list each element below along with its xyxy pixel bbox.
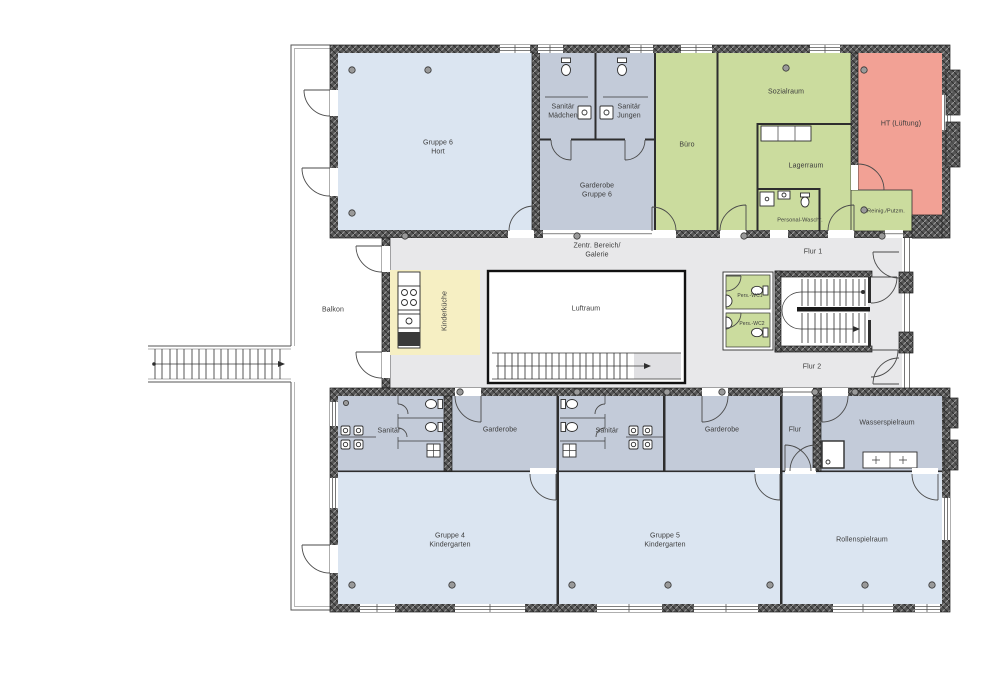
room-label-balkon-name: Balkon bbox=[322, 307, 344, 316]
room-label-luftraum: Luftraum bbox=[572, 306, 600, 315]
room-label-zentraler-bereich-type: Galerie bbox=[573, 251, 620, 260]
room-label-kinderkueche: Kinderküche bbox=[442, 291, 451, 331]
room-label-ht-lueftung-name: HT (Lüftung) bbox=[881, 121, 921, 130]
closet-icon bbox=[761, 126, 811, 141]
room-label-personal-waschraum: Personal-Waschr. bbox=[777, 218, 823, 225]
wall-corner-se bbox=[912, 215, 942, 238]
room-label-flur1: Flur 1 bbox=[804, 249, 823, 258]
room-label-sanitaer-jungen: Sanitär Jungen bbox=[617, 103, 641, 120]
staff-wc-block bbox=[723, 272, 773, 350]
room-label-zentraler-bereich-name: Zentr. Bereich/ bbox=[573, 242, 620, 251]
room-label-garderobe-links-name: Garderobe bbox=[483, 427, 517, 436]
room-label-sanitaer-jungen-name: Sanitär bbox=[617, 103, 641, 112]
room-label-personal-waschraum-name: Personal-Waschr. bbox=[777, 218, 823, 225]
room-label-gruppe6-name: Gruppe 6 bbox=[423, 139, 453, 148]
room-label-flur: Flur bbox=[789, 427, 801, 436]
kinderkueche-area bbox=[390, 270, 480, 355]
room-label-gruppe4-type: Kindergarten bbox=[429, 541, 470, 550]
room-label-gruppe5: Gruppe 5 Kindergarten bbox=[644, 532, 685, 549]
room-label-luftraum-name: Luftraum bbox=[572, 306, 600, 315]
room-label-balkon: Balkon bbox=[322, 307, 344, 316]
room-label-flur-name: Flur bbox=[789, 427, 801, 436]
room-label-flur2: Flur 2 bbox=[803, 364, 822, 373]
room-label-garderobe-gruppe6-name: Garderobe bbox=[580, 182, 614, 191]
room-label-gruppe4: Gruppe 4 Kindergarten bbox=[429, 532, 470, 549]
floor-plan-svg bbox=[0, 0, 1000, 697]
floor-plan: Gruppe 6 Hort Sanitär Mädchen Sanitär Ju… bbox=[0, 0, 1000, 697]
room-label-sozialraum: Sozialraum bbox=[768, 89, 804, 98]
room-label-lagerraum: Lagerraum bbox=[789, 163, 824, 172]
balcony-door-gruppe4 bbox=[302, 545, 338, 573]
room-label-wasserspielraum-name: Wasserspielraum bbox=[859, 420, 914, 429]
room-label-gruppe6-type: Hort bbox=[423, 148, 453, 157]
stair-direction-arrow bbox=[278, 361, 285, 367]
room-label-wasserspielraum: Wasserspielraum bbox=[859, 420, 914, 429]
room-label-pers-wc1-name: Pers.-WC1 bbox=[737, 293, 762, 299]
central-area bbox=[356, 238, 913, 388]
room-label-sanitaer-links: Sanitär bbox=[378, 428, 401, 437]
room-label-sanitaer-maedchen-type: Mädchen bbox=[548, 112, 578, 121]
room-label-kinderkueche-name: Kinderküche bbox=[442, 291, 451, 331]
room-label-pers-wc2: Pers.-WC2 bbox=[739, 321, 764, 327]
room-label-rollenspielraum: Rollenspielraum bbox=[836, 537, 888, 546]
room-label-gruppe4-name: Gruppe 4 bbox=[429, 532, 470, 541]
room-label-ht-lueftung: HT (Lüftung) bbox=[881, 121, 921, 130]
room-label-garderobe-rechts: Garderobe bbox=[705, 427, 739, 436]
room-label-sanitaer-maedchen-name: Sanitär bbox=[548, 103, 578, 112]
balcony-railing bbox=[291, 45, 330, 610]
room-label-gruppe5-type: Kindergarten bbox=[644, 541, 685, 550]
room-label-flur2-name: Flur 2 bbox=[803, 364, 822, 373]
room-label-sozialraum-name: Sozialraum bbox=[768, 89, 804, 98]
kitchen-appliance-icon bbox=[398, 332, 420, 346]
room-label-buero: Büro bbox=[679, 142, 694, 151]
room-label-rollenspielraum-name: Rollenspielraum bbox=[836, 537, 888, 546]
room-label-flur1-name: Flur 1 bbox=[804, 249, 823, 258]
room-label-pers-wc1: Pers.-WC1 bbox=[737, 293, 762, 299]
room-label-gruppe5-name: Gruppe 5 bbox=[644, 532, 685, 541]
room-label-pers-wc2-name: Pers.-WC2 bbox=[739, 321, 764, 327]
room-label-sanitaer-maedchen: Sanitär Mädchen bbox=[548, 103, 578, 120]
room-label-sanitaer-rechts: Sanitär bbox=[596, 428, 619, 437]
room-label-sanitaer-links-name: Sanitär bbox=[378, 428, 401, 437]
top-wing bbox=[302, 45, 960, 256]
stove-icon bbox=[398, 286, 420, 310]
room-sanitaer-garderobe6 bbox=[540, 53, 655, 230]
room-label-zentraler-bereich: Zentr. Bereich/ Galerie bbox=[573, 242, 620, 259]
room-label-garderobe-rechts-name: Garderobe bbox=[705, 427, 739, 436]
room-label-lagerraum-name: Lagerraum bbox=[789, 163, 824, 172]
room-label-sanitaer-rechts-name: Sanitär bbox=[596, 428, 619, 437]
luftraum-void bbox=[488, 271, 685, 383]
wall-gruppe6-sanitaer bbox=[532, 53, 540, 230]
room-label-garderobe-gruppe6-type: Gruppe 6 bbox=[580, 191, 614, 200]
exterior-staircase bbox=[148, 346, 291, 382]
room-label-gruppe6: Gruppe 6 Hort bbox=[423, 139, 453, 156]
room-label-garderobe-gruppe6: Garderobe Gruppe 6 bbox=[580, 182, 614, 199]
room-label-garderobe-links: Garderobe bbox=[483, 427, 517, 436]
room-label-reinigung-name: Reinig./Putzm. bbox=[867, 209, 905, 216]
room-label-reinigung: Reinig./Putzm. bbox=[867, 209, 905, 216]
room-label-buero-name: Büro bbox=[679, 142, 694, 151]
room-label-sanitaer-jungen-type: Jungen bbox=[617, 112, 641, 121]
